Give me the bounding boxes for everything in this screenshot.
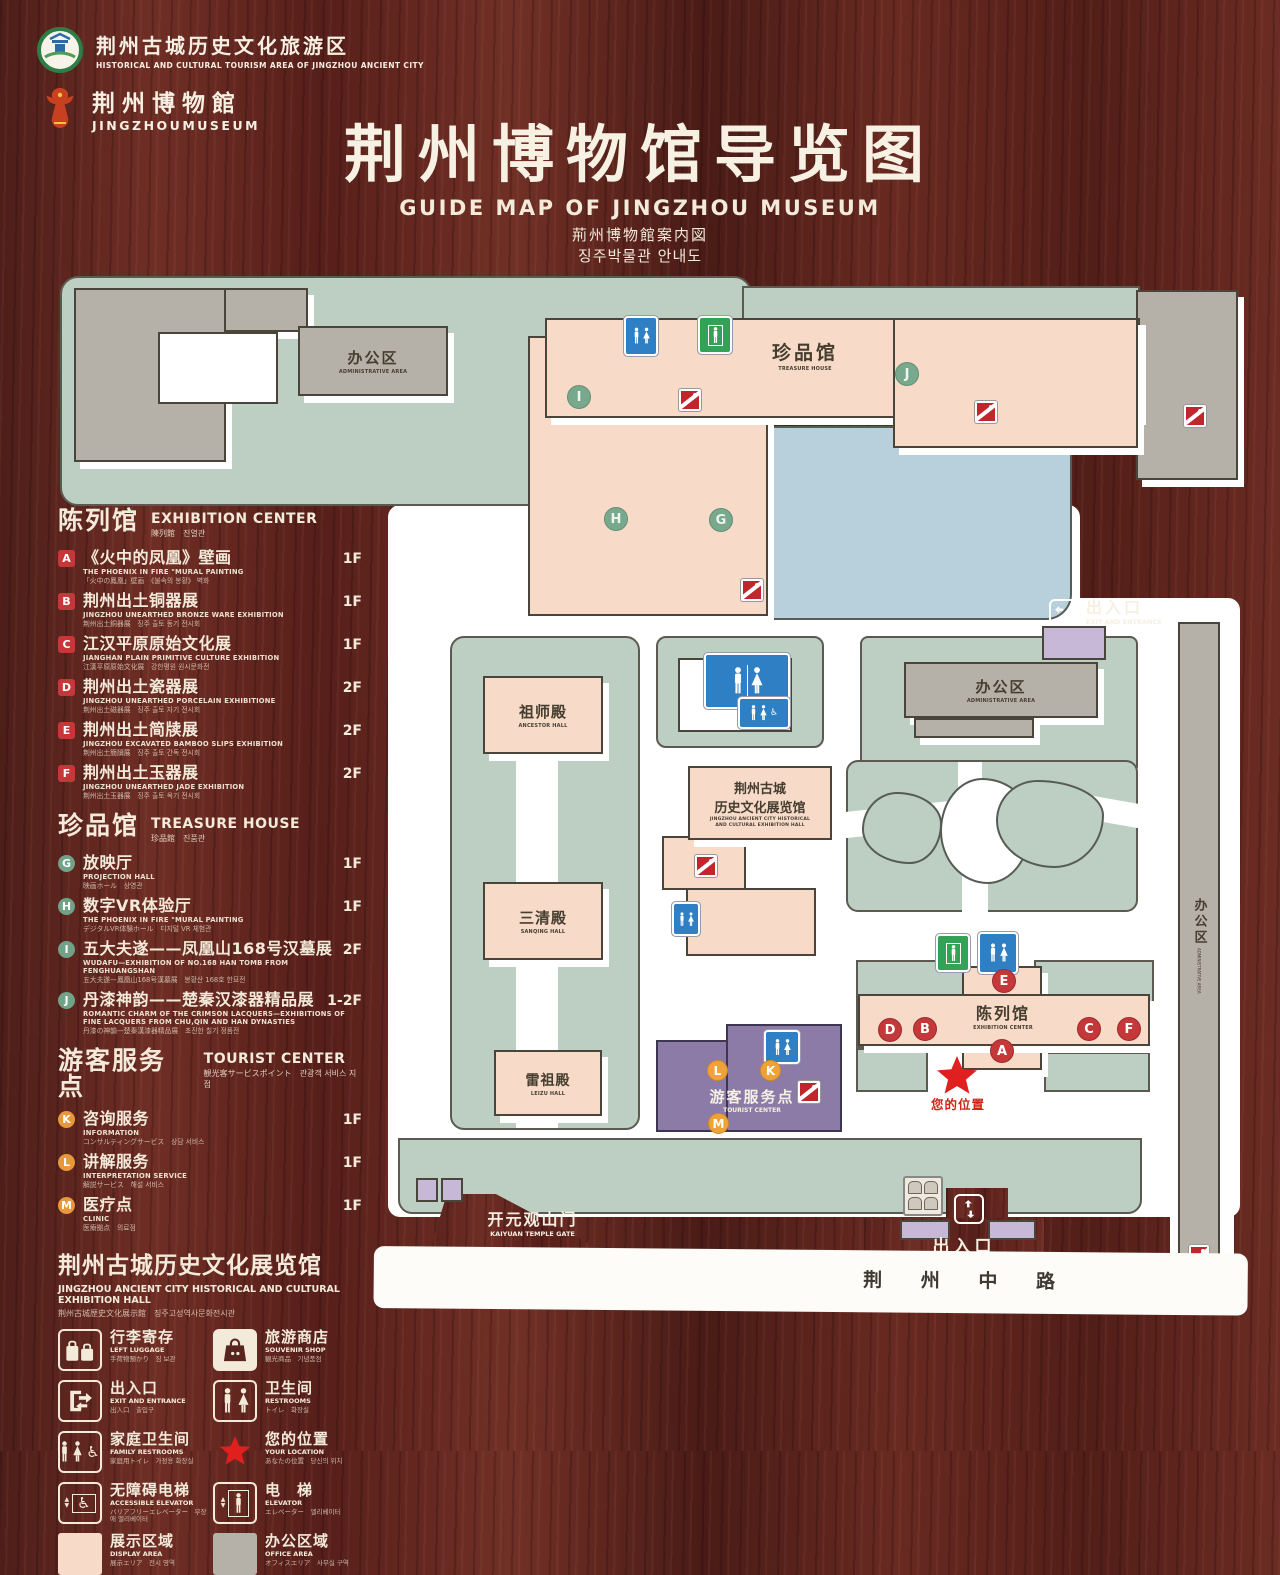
office-strip-label: 办公区: [1190, 898, 1209, 946]
entrance-gate-top: [1042, 626, 1106, 660]
escalator-icon: [797, 1080, 821, 1104]
escalator-icon: [974, 400, 998, 424]
museum-map: 办公区 ADMINISTRATIVE AREA 珍品馆 TREASURE HOU…: [0, 0, 1280, 1451]
exhibition-center-label: 陈列馆 EXHIBITION CENTER: [938, 1000, 1068, 1031]
elevator-icon: ▲▼: [213, 1482, 257, 1524]
map-marker-green: G: [709, 508, 733, 532]
restroom-sign-hall: [674, 904, 698, 934]
restroom-sign-treasure: [626, 318, 656, 354]
admin-top-label: 办公区: [347, 347, 398, 368]
escalator-icon: [678, 388, 702, 412]
legend-accessible-elevator: ▲▼ ♿ 无障碍电梯 ACCESSIBLE ELEVATOR バリアフリーエレベ…: [58, 1482, 207, 1524]
admin-top-label-en: ADMINISTRATIVE AREA: [339, 369, 407, 375]
office-area-swatch: [213, 1533, 257, 1575]
legend-office-area: 办公区域 OFFICE AREA オフィスエリア 사무실 구역: [213, 1533, 362, 1575]
escalator-icon: [694, 854, 718, 878]
gate-pillar: [416, 1178, 438, 1202]
treasure-house-label: 珍品馆 TREASURE HOUSE: [740, 338, 870, 372]
map-marker-green: J: [895, 362, 919, 386]
road-label: 荆 州 中 路: [863, 1265, 1071, 1294]
office-strip-building: 办公区 ADMINISTRATIVE AREA: [1178, 622, 1220, 1270]
map-marker-red: D: [878, 1018, 902, 1042]
accessible-elevator-icon: ▲▼ ♿: [58, 1482, 102, 1524]
map-marker-orange: K: [760, 1060, 781, 1081]
ancient-city-hall-south: [686, 888, 816, 956]
family-restroom-sign-central: ♿: [740, 699, 788, 727]
restroom-sign-exhibition: [980, 934, 1016, 972]
office-strip-label-en: ADMINISTRATIVE AREA: [1197, 948, 1202, 994]
leizu-hall: 雷祖殿 LEIZU HALL: [494, 1050, 602, 1116]
legend-display-area: 展示区域 DISPLAY AREA 展示エリア 전시 영역: [58, 1533, 207, 1575]
map-marker-orange: L: [707, 1060, 728, 1081]
office-block-northeast: [1136, 290, 1238, 480]
escalator-icon: [740, 578, 764, 602]
restroom-sign-tourist: [766, 1032, 798, 1062]
admin-building-mid-tab: [914, 718, 1034, 738]
map-marker-red: B: [913, 1017, 937, 1041]
elevator-sign-exhibition: [938, 936, 968, 970]
sanqing-hall: 三清殿 SANQING HALL: [483, 882, 603, 960]
ancient-city-hall-main: 荆州古城 历史文化展览馆 JINGZHOU ANCIENT CITY HISTO…: [688, 766, 832, 840]
display-area-swatch: [58, 1533, 102, 1575]
map-marker-red: E: [992, 969, 1016, 993]
your-location-star-icon: [936, 1056, 978, 1098]
map-marker-orange: M: [708, 1113, 729, 1134]
map-marker-red: F: [1117, 1017, 1141, 1041]
exit-entrance-top-icon: [1049, 599, 1079, 625]
ticket-booth-icon: [903, 1176, 943, 1216]
gate-pillar: [441, 1178, 463, 1202]
exit-entrance-bottom-icon: [954, 1194, 984, 1224]
map-marker-green: I: [567, 385, 591, 409]
legend-elevator: ▲▼ 电 梯 ELEVATOR エレベーター 엘리베이터: [213, 1482, 362, 1524]
escalator-icon: [1183, 404, 1207, 428]
road-jingzhou-middle: 荆 州 中 路: [373, 1246, 1248, 1316]
admin-building-bar: 办公区 ADMINISTRATIVE AREA: [298, 326, 448, 396]
elevator-sign-treasure: [700, 318, 730, 352]
map-marker-red: C: [1077, 1017, 1101, 1041]
treasure-house-east-block: [893, 318, 1138, 448]
your-location-label: 您的位置: [915, 1094, 1001, 1113]
admin-building-arm: [224, 288, 308, 332]
up-down-arrows: ▲▼: [64, 1497, 69, 1509]
ground-exhibition-bit-right: [1044, 1052, 1150, 1092]
ground-exhibition-bit-left: [856, 1048, 928, 1092]
up-down-arrows: ▲▼: [221, 1497, 226, 1509]
admin-building-mid: 办公区 ADMINISTRATIVE AREA: [904, 662, 1098, 718]
admin-courtyard: [158, 332, 278, 404]
gate-label: 开元观山门 KAIYUAN TEMPLE GATE: [450, 1206, 615, 1238]
map-marker-green: H: [604, 507, 628, 531]
map-marker-red: A: [990, 1039, 1014, 1063]
ancestor-hall: 祖师殿 ANCESTOR HALL: [483, 676, 603, 754]
